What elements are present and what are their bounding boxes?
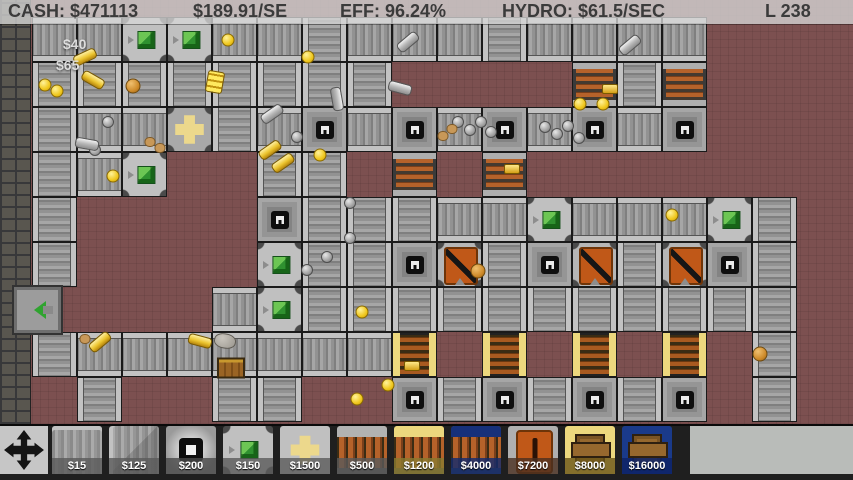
toolbar-items: $15$125$200$150$1500$500$1200$4000$7200$… bbox=[52, 426, 672, 474]
cash-label: CASH: $471113 bbox=[8, 1, 138, 22]
tile-drill[interactable] bbox=[482, 377, 527, 422]
build-button-conveyor-corner[interactable]: $125 bbox=[109, 426, 159, 474]
tile-conveyor-h[interactable] bbox=[347, 332, 392, 377]
item-ball bbox=[321, 251, 333, 263]
build-button-gold-smelter[interactable]: $1200 bbox=[394, 426, 444, 474]
tile-gold-smelter[interactable] bbox=[572, 332, 617, 377]
tile-crusher[interactable] bbox=[572, 242, 617, 287]
tile-conveyor-v[interactable] bbox=[392, 197, 437, 242]
item-ingot bbox=[602, 84, 618, 94]
tile-seller[interactable] bbox=[122, 152, 167, 197]
tile-conveyor-h[interactable] bbox=[617, 197, 662, 242]
hydro-label: HYDRO: $61.5/SEC bbox=[502, 1, 665, 22]
price-label: $4000 bbox=[451, 458, 501, 474]
green-cube-icon bbox=[272, 301, 290, 319]
item-coin bbox=[107, 170, 120, 183]
item-ball bbox=[344, 232, 356, 244]
drill-core-icon bbox=[496, 391, 514, 409]
item-nug bbox=[155, 143, 166, 153]
price-label: $7200 bbox=[508, 458, 558, 474]
build-button-seller[interactable]: $150 bbox=[223, 426, 273, 474]
tile-gold-smelter[interactable] bbox=[662, 332, 707, 377]
tile-gold-smelter[interactable] bbox=[482, 332, 527, 377]
price-label: $15 bbox=[52, 458, 102, 474]
build-button-cross-junction[interactable]: $1500 bbox=[280, 426, 330, 474]
drill-core-icon bbox=[406, 391, 424, 409]
tile-conveyor-v[interactable] bbox=[752, 377, 797, 422]
item-crate bbox=[217, 358, 245, 379]
item-nug bbox=[80, 334, 91, 344]
price-label: $16000 bbox=[622, 458, 672, 474]
drill-core-icon bbox=[676, 121, 694, 139]
exit-arrow-stem bbox=[43, 306, 53, 314]
crusher-arrow-icon bbox=[590, 273, 600, 285]
drill-core-icon bbox=[676, 391, 694, 409]
green-cube-icon bbox=[137, 166, 155, 184]
build-button-gold-warehouse[interactable]: $8000 bbox=[565, 426, 615, 474]
move-arrows-icon bbox=[3, 429, 45, 471]
tile-copper-smelter[interactable] bbox=[392, 152, 437, 197]
item-nug bbox=[447, 124, 458, 134]
factory-floor[interactable]: $40$65 bbox=[0, 0, 853, 424]
tile-conveyor-v[interactable] bbox=[212, 107, 257, 152]
cross-icon bbox=[173, 113, 207, 147]
tile-drill[interactable] bbox=[662, 107, 707, 152]
item-ball bbox=[562, 120, 574, 132]
money-popup: $65 bbox=[56, 57, 79, 73]
tile-conveyor-h[interactable] bbox=[122, 332, 167, 377]
tile-conveyor-v[interactable] bbox=[212, 377, 257, 422]
tile-conveyor-v[interactable] bbox=[32, 197, 77, 242]
tile-conveyor-v[interactable] bbox=[437, 287, 482, 332]
green-cube-icon bbox=[722, 211, 740, 229]
tile-conveyor-v[interactable] bbox=[617, 377, 662, 422]
top-hud: CASH: $471113 $189.91/SE EFF: 96.24% HYD… bbox=[0, 0, 853, 24]
item-ball bbox=[301, 264, 313, 276]
drill-core-icon bbox=[271, 211, 289, 229]
tile-drill[interactable] bbox=[707, 242, 752, 287]
item-ball bbox=[102, 116, 114, 128]
tile-conveyor-h[interactable] bbox=[212, 287, 257, 332]
tile-conveyor-v[interactable] bbox=[347, 287, 392, 332]
tile-seller[interactable] bbox=[527, 197, 572, 242]
tile-conveyor-v[interactable] bbox=[617, 242, 662, 287]
item-ball bbox=[475, 116, 487, 128]
tile-drill[interactable] bbox=[572, 107, 617, 152]
item-coin bbox=[597, 98, 610, 111]
item-coin bbox=[351, 393, 364, 406]
move-tool-button[interactable] bbox=[0, 426, 48, 474]
drill-core-icon bbox=[316, 121, 334, 139]
exit-machine[interactable] bbox=[14, 287, 61, 333]
green-cube-icon bbox=[182, 31, 200, 49]
tile-conveyor-v[interactable] bbox=[77, 377, 122, 422]
item-ball bbox=[344, 197, 356, 209]
tile-drill[interactable] bbox=[662, 377, 707, 422]
money-popup: $40 bbox=[63, 36, 86, 52]
tile-conveyor-v[interactable] bbox=[617, 62, 662, 107]
item-ingot bbox=[504, 164, 520, 174]
item-ball bbox=[485, 126, 497, 138]
price-label: $200 bbox=[166, 458, 216, 474]
tile-conveyor-v[interactable] bbox=[527, 287, 572, 332]
item-ccoin bbox=[753, 347, 768, 362]
game-screen: $40$65 CASH: $471113 $189.91/SE EFF: 96.… bbox=[0, 0, 853, 480]
item-coin bbox=[302, 51, 315, 64]
tile-conveyor-v[interactable] bbox=[32, 107, 77, 152]
drill-core-icon bbox=[541, 256, 559, 274]
tile-conveyor-v[interactable] bbox=[437, 377, 482, 422]
price-label: $1200 bbox=[394, 458, 444, 474]
tile-drill[interactable] bbox=[392, 242, 437, 287]
tile-conveyor-h[interactable] bbox=[572, 197, 617, 242]
crusher-arrow-icon bbox=[680, 273, 690, 285]
item-ball bbox=[539, 121, 551, 133]
price-label: $500 bbox=[337, 458, 387, 474]
level-label: L 238 bbox=[765, 1, 811, 22]
build-button-conveyor[interactable]: $15 bbox=[52, 426, 102, 474]
tile-conveyor-h[interactable] bbox=[482, 197, 527, 242]
tile-conveyor-v[interactable] bbox=[302, 287, 347, 332]
efficiency-label: EFF: 96.24% bbox=[340, 1, 446, 22]
tile-seller[interactable] bbox=[257, 287, 302, 332]
tile-conveyor-v[interactable] bbox=[527, 377, 572, 422]
build-button-blue-smelter[interactable]: $4000 bbox=[451, 426, 501, 474]
tile-conveyor-h[interactable] bbox=[347, 107, 392, 152]
tile-conveyor-v[interactable] bbox=[257, 377, 302, 422]
drill-core-icon bbox=[406, 121, 424, 139]
tile-conveyor-v[interactable] bbox=[347, 242, 392, 287]
crusher-arrow-icon bbox=[455, 273, 465, 285]
green-cube-icon bbox=[272, 256, 290, 274]
tile-seller[interactable] bbox=[257, 242, 302, 287]
tile-drill[interactable] bbox=[302, 107, 347, 152]
price-label: $125 bbox=[109, 458, 159, 474]
build-button-copper-smelter[interactable]: $500 bbox=[337, 426, 387, 474]
item-coin bbox=[314, 149, 327, 162]
tile-drill[interactable] bbox=[257, 197, 302, 242]
tile-drill[interactable] bbox=[392, 107, 437, 152]
tile-copper-smelter[interactable] bbox=[662, 62, 707, 107]
item-ball bbox=[464, 124, 476, 136]
tile-conveyor-v[interactable] bbox=[662, 287, 707, 332]
tile-conveyor-v[interactable] bbox=[752, 242, 797, 287]
build-button-blue-warehouse[interactable]: $16000 bbox=[622, 426, 672, 474]
drill-core-icon bbox=[586, 121, 604, 139]
tile-cross-junction[interactable] bbox=[167, 107, 212, 152]
tile-drill[interactable] bbox=[572, 377, 617, 422]
build-toolbar: $15$125$200$150$1500$500$1200$4000$7200$… bbox=[0, 424, 853, 480]
tile-conveyor-v[interactable] bbox=[752, 287, 797, 332]
tile-conveyor-h[interactable] bbox=[437, 197, 482, 242]
green-cube-icon bbox=[542, 211, 560, 229]
tile-conveyor-v[interactable] bbox=[32, 242, 77, 287]
price-label: $8000 bbox=[565, 458, 615, 474]
item-ball bbox=[551, 128, 563, 140]
tile-conveyor-v[interactable] bbox=[707, 287, 752, 332]
build-button-crusher[interactable]: $7200 bbox=[508, 426, 558, 474]
price-label: $150 bbox=[223, 458, 273, 474]
tile-conveyor-h[interactable] bbox=[302, 332, 347, 377]
tile-conveyor-v[interactable] bbox=[32, 152, 77, 197]
tile-conveyor-v[interactable] bbox=[617, 287, 662, 332]
item-ball bbox=[573, 132, 585, 144]
item-coin bbox=[574, 98, 587, 111]
brick-wall bbox=[0, 0, 30, 424]
item-coin bbox=[666, 209, 679, 222]
drill-core-icon bbox=[586, 391, 604, 409]
build-button-wall-block[interactable]: $200 bbox=[166, 426, 216, 474]
drill-core-icon bbox=[496, 121, 514, 139]
tile-conveyor-v[interactable] bbox=[257, 62, 302, 107]
tile-conveyor-v[interactable] bbox=[302, 197, 347, 242]
tile-conveyor-v[interactable] bbox=[347, 62, 392, 107]
tile-conveyor-v[interactable] bbox=[482, 242, 527, 287]
tile-conveyor-v[interactable] bbox=[572, 287, 617, 332]
green-cube-icon bbox=[137, 31, 155, 49]
item-ingot bbox=[404, 361, 420, 371]
income-label: $189.91/SE bbox=[193, 1, 287, 22]
tile-conveyor-v[interactable] bbox=[392, 287, 437, 332]
tile-seller[interactable] bbox=[707, 197, 752, 242]
tile-conveyor-v[interactable] bbox=[32, 332, 77, 377]
toolbar-empty-panel bbox=[690, 426, 853, 474]
tile-conveyor-h[interactable] bbox=[257, 332, 302, 377]
tile-copper-smelter[interactable] bbox=[482, 152, 527, 197]
item-ccoin bbox=[471, 264, 486, 279]
tile-conveyor-v[interactable] bbox=[752, 197, 797, 242]
drill-core-icon bbox=[406, 256, 424, 274]
item-coin bbox=[222, 34, 235, 47]
tile-conveyor-v[interactable] bbox=[482, 287, 527, 332]
item-coin bbox=[51, 85, 64, 98]
item-coin bbox=[382, 379, 395, 392]
drill-core-icon bbox=[721, 256, 739, 274]
item-ball bbox=[291, 131, 303, 143]
item-ccoin bbox=[126, 79, 141, 94]
item-coin bbox=[356, 306, 369, 319]
tile-crusher[interactable] bbox=[662, 242, 707, 287]
tile-conveyor-h[interactable] bbox=[617, 107, 662, 152]
price-label: $1500 bbox=[280, 458, 330, 474]
tile-drill[interactable] bbox=[392, 377, 437, 422]
tile-drill[interactable] bbox=[527, 242, 572, 287]
